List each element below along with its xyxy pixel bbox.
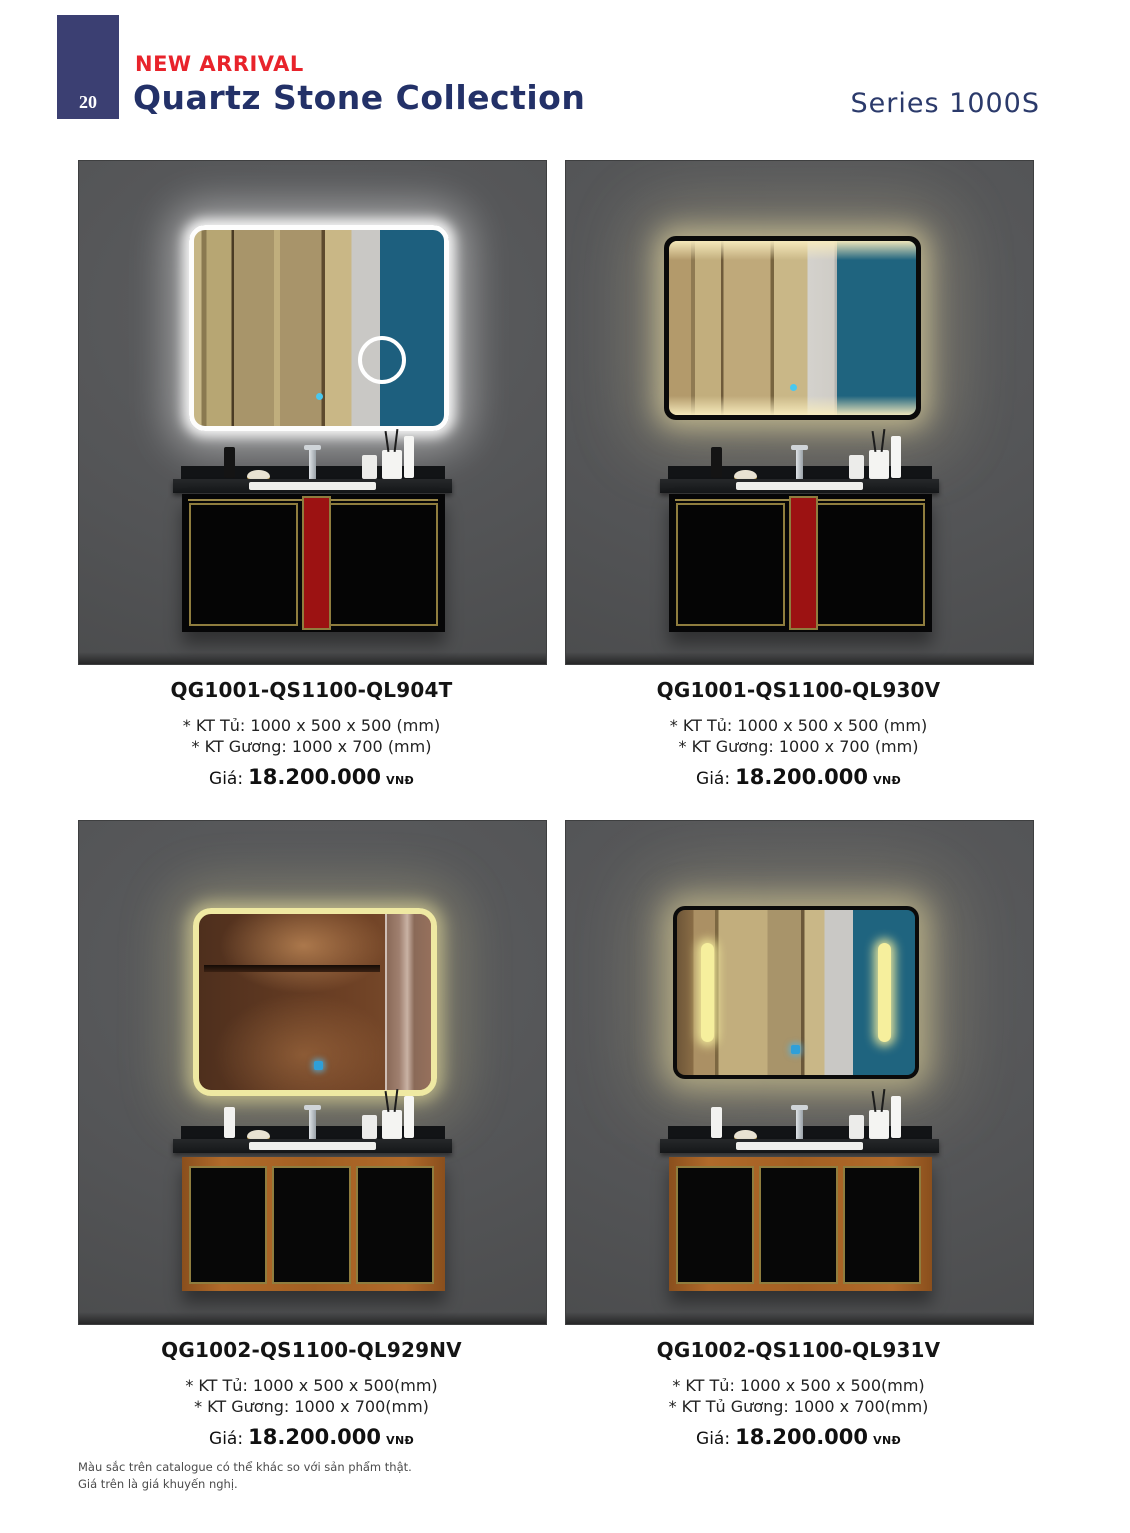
- price-value: 18.200.000: [248, 1425, 381, 1449]
- toothbrush-holder: [869, 1110, 889, 1139]
- led-mirror: [189, 225, 449, 430]
- cabinet-panel-red: [302, 496, 331, 630]
- vanity-cabinet-wood: [182, 1157, 445, 1291]
- vanity-cabinet: [182, 494, 445, 632]
- product-info-2: QG1001-QS1100-QL930V * KT Tủ: 1000 x 500…: [565, 678, 1032, 789]
- touch-sensor-icon: [314, 1061, 323, 1070]
- spray-bottle: [404, 436, 414, 478]
- bottle: [711, 447, 722, 478]
- new-arrival-label: NEW ARRIVAL: [135, 52, 304, 76]
- touch-sensor-icon: [790, 384, 797, 391]
- sink: [249, 482, 375, 490]
- product-code: QG1001-QS1100-QL904T: [78, 678, 545, 702]
- sink: [249, 1142, 375, 1150]
- product-price: Giá: 18.200.000 VNĐ: [565, 1425, 1032, 1449]
- product-image-2: [565, 160, 1034, 665]
- touch-sensor-icon: [316, 393, 323, 400]
- product-specs: * KT Tủ: 1000 x 500 x 500(mm) * KT Gương…: [78, 1375, 545, 1417]
- product-info-1: QG1001-QS1100-QL904T * KT Tủ: 1000 x 500…: [78, 678, 545, 789]
- spec-mirror: * KT Tủ Gương: 1000 x 700(mm): [565, 1396, 1032, 1417]
- sink: [736, 482, 862, 490]
- product-code: QG1002-QS1100-QL929NV: [78, 1338, 545, 1362]
- cabinet-door-left: [676, 1166, 754, 1284]
- toothbrush: [872, 431, 877, 452]
- vanity-cabinet-wood: [669, 1157, 932, 1291]
- mirror-surface: [677, 910, 914, 1076]
- vanity-cabinet: [669, 494, 932, 632]
- price-value: 18.200.000: [735, 1425, 868, 1449]
- product-info-4: QG1002-QS1100-QL931V * KT Tủ: 1000 x 500…: [565, 1338, 1032, 1449]
- product-price: Giá: 18.200.000 VNĐ: [78, 765, 545, 789]
- product-info-3: QG1002-QS1100-QL929NV * KT Tủ: 1000 x 50…: [78, 1338, 545, 1449]
- cabinet-panel-red: [789, 496, 818, 630]
- toothbrush-holder: [382, 450, 402, 479]
- product-specs: * KT Tủ: 1000 x 500 x 500 (mm) * KT Gươn…: [565, 715, 1032, 757]
- bottle: [711, 1107, 722, 1138]
- jar: [891, 1096, 901, 1138]
- touch-sensor-icon: [791, 1045, 800, 1054]
- product-image-1: [78, 160, 547, 665]
- toothbrush: [880, 429, 885, 452]
- cabinet-door-right: [356, 1166, 434, 1284]
- product-specs: * KT Tủ: 1000 x 500 x 500(mm) * KT Tủ Gư…: [565, 1375, 1032, 1417]
- cabinet-door-right: [329, 503, 438, 626]
- cabinet-door-right: [816, 503, 925, 626]
- bottle: [224, 1107, 235, 1138]
- cup: [849, 455, 865, 479]
- cup: [362, 455, 378, 479]
- price-label: Giá:: [696, 769, 730, 789]
- catalog-page: 20 NEW ARRIVAL Quartz Stone Collection S…: [0, 0, 1130, 1533]
- reflected-shelf: [204, 965, 380, 972]
- cup: [362, 1115, 378, 1139]
- faucet-spout: [791, 445, 808, 451]
- page-number: 20: [79, 92, 97, 113]
- faucet-spout: [304, 445, 321, 451]
- page-number-badge: 20: [57, 15, 119, 119]
- cabinet-door-left: [189, 1166, 267, 1284]
- backlit-mirror: [664, 236, 921, 420]
- cabinet-door-right: [843, 1166, 921, 1284]
- product-specs: * KT Tủ: 1000 x 500 x 500 (mm) * KT Gươn…: [78, 715, 545, 757]
- series-label: Series 1000S: [851, 88, 1040, 119]
- product-code: QG1001-QS1100-QL930V: [565, 678, 1032, 702]
- spec-mirror: * KT Gương: 1000 x 700 (mm): [78, 736, 545, 757]
- price-value: 18.200.000: [248, 765, 381, 789]
- spec-mirror: * KT Gương: 1000 x 700(mm): [78, 1396, 545, 1417]
- cup: [849, 1115, 865, 1139]
- toothbrush: [393, 429, 398, 452]
- spec-cabinet: * KT Tủ: 1000 x 500 x 500 (mm): [565, 715, 1032, 736]
- price-value: 18.200.000: [735, 765, 868, 789]
- cabinet-door-left: [189, 503, 298, 626]
- led-bar-mirror: [673, 906, 918, 1080]
- bottle: [224, 447, 235, 478]
- faucet-spout: [791, 1105, 808, 1111]
- faucet-spout: [304, 1105, 321, 1111]
- price-currency: VNĐ: [386, 1434, 414, 1447]
- spray-bottle: [891, 436, 901, 478]
- led-ring-mirror: [193, 908, 436, 1096]
- magnifier-mirror-ring: [358, 336, 406, 384]
- toothbrush: [385, 431, 390, 452]
- page-title: Quartz Stone Collection: [133, 78, 585, 117]
- product-image-3: [78, 820, 547, 1325]
- cabinet-door-center: [759, 1166, 837, 1284]
- product-code: QG1002-QS1100-QL931V: [565, 1338, 1032, 1362]
- spec-cabinet: * KT Tủ: 1000 x 500 x 500(mm): [565, 1375, 1032, 1396]
- footer-line-1: Màu sắc trên catalogue có thể khác so vớ…: [78, 1459, 412, 1476]
- product-price: Giá: 18.200.000 VNĐ: [78, 1425, 545, 1449]
- mirror-surface: [669, 241, 916, 415]
- price-currency: VNĐ: [873, 774, 901, 787]
- price-currency: VNĐ: [873, 1434, 901, 1447]
- product-image-4: [565, 820, 1034, 1325]
- spec-cabinet: * KT Tủ: 1000 x 500 x 500 (mm): [78, 715, 545, 736]
- toothbrush-holder: [869, 450, 889, 479]
- reflected-marble-wall: [385, 914, 431, 1090]
- price-label: Giá:: [209, 769, 243, 789]
- footer-line-2: Giá trên là giá khuyến nghị.: [78, 1476, 412, 1493]
- jar: [404, 1096, 414, 1138]
- led-light-bar-left: [701, 943, 714, 1042]
- toothbrush-holder: [382, 1110, 402, 1139]
- cabinet-door-left: [676, 503, 785, 626]
- cabinet-door-center: [272, 1166, 350, 1284]
- toothbrush: [880, 1089, 885, 1112]
- price-label: Giá:: [696, 1429, 730, 1449]
- price-label: Giá:: [209, 1429, 243, 1449]
- product-price: Giá: 18.200.000 VNĐ: [565, 765, 1032, 789]
- toothbrush: [872, 1091, 877, 1112]
- spec-mirror: * KT Gương: 1000 x 700 (mm): [565, 736, 1032, 757]
- sink: [736, 1142, 862, 1150]
- price-currency: VNĐ: [386, 774, 414, 787]
- footer-note: Màu sắc trên catalogue có thể khác so vớ…: [78, 1459, 412, 1494]
- led-light-bar-right: [878, 943, 891, 1042]
- spec-cabinet: * KT Tủ: 1000 x 500 x 500(mm): [78, 1375, 545, 1396]
